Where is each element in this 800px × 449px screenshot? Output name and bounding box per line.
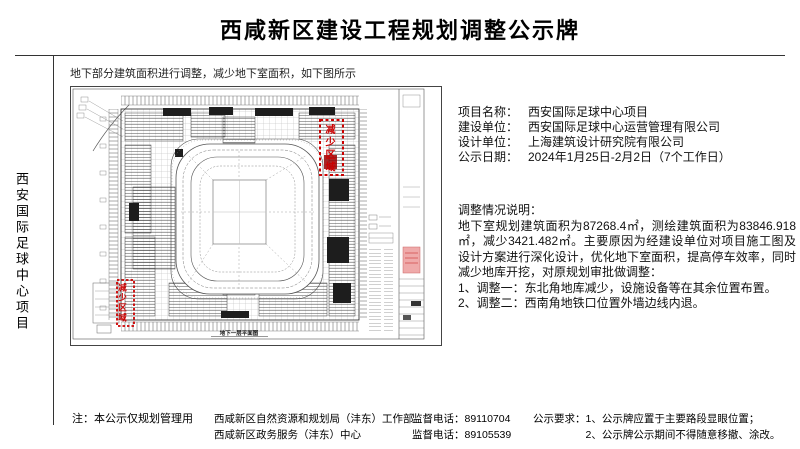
adjustment-heading: 调整情况说明： <box>458 203 796 219</box>
info-row-design-unit: 设计单位： 上海建筑设计研究院有限公司 <box>458 135 793 150</box>
info-value: 西安国际足球中心项目 <box>528 105 648 120</box>
reduce-area-label-sw: 减少区域 <box>118 283 127 323</box>
info-row-project-name: 项目名称： 西安国际足球中心项目 <box>458 105 793 120</box>
title-block-strip <box>399 95 424 335</box>
phone-number: 89110704 <box>465 413 511 425</box>
drawing-note-text: 地下部分建筑面积进行调整，减少地下室面积，如下图所示 <box>70 65 356 81</box>
requirements-label: 公示要求： <box>533 411 586 443</box>
title-divider-line <box>15 55 785 56</box>
supervision-phone-list: 监督电话：89110704 监督电话：89105539 <box>412 411 511 443</box>
notes-column <box>369 215 393 331</box>
project-info-panel: 项目名称： 西安国际足球中心项目 建设单位： 西安国际足球中心运营管理有限公司 … <box>458 105 793 165</box>
publicity-requirements: 公示要求： 1、公示牌应置于主要路段显眼位置； 2、公示牌公示期间不得随意移撤、… <box>533 411 780 443</box>
info-value: 西安国际足球中心运营管理有限公司 <box>528 120 720 135</box>
phone-row-1: 监督电话：89110704 <box>412 411 511 427</box>
info-row-publicity-date: 公示日期： 2024年1月25日-2月2日（7个工作日） <box>458 150 793 165</box>
info-value: 上海建筑设计研究院有限公司 <box>528 135 684 150</box>
approval-stamp <box>403 247 420 273</box>
info-row-construction-unit: 建设单位： 西安国际足球中心运营管理有限公司 <box>458 120 793 135</box>
info-value: 2024年1月25日-2月2日（7个工作日） <box>528 150 731 165</box>
requirement-item-2: 2、公示牌公示期间不得随意移撤、涂改。 <box>586 427 781 443</box>
adjustment-item-1: 1、调整一：东北角地库减少，设施设备等在其余位置布置。 <box>458 281 796 297</box>
info-label: 项目名称： <box>458 105 528 120</box>
reduce-area-label-ne: 减少区域 <box>323 124 333 174</box>
project-name-vertical-label: 西安国际足球中心项目 <box>12 172 31 332</box>
phone-label: 监督电话： <box>412 413 465 425</box>
phone-number: 89105539 <box>465 429 512 441</box>
info-label: 公示日期： <box>458 150 528 165</box>
axis-markers <box>100 117 106 310</box>
info-label: 建设单位： <box>458 120 528 135</box>
info-label: 设计单位： <box>458 135 528 150</box>
center-field <box>213 180 266 244</box>
requirement-item-1: 1、公示牌应置于主要路段显眼位置； <box>586 411 781 427</box>
adjustment-body: 地下室规划建筑面积为87268.4㎡，测绘建筑面积为83846.918㎡，减少3… <box>458 219 796 281</box>
notice-board: 西咸新区建设工程规划调整公示牌 西安国际足球中心项目 地下部分建筑面积进行调整，… <box>0 0 800 449</box>
plan-caption-text: 地下一层平面图 <box>220 329 259 337</box>
site-plan-drawing: 地下一层平面图 减少区域 减少区域 <box>70 86 442 346</box>
agency-name-1: 西咸新区自然资源和规划局（沣东）工作部 <box>214 411 414 427</box>
page-title: 西咸新区建设工程规划调整公示牌 <box>0 13 800 45</box>
agency-list: 西咸新区自然资源和规划局（沣东）工作部 西咸新区政务服务（沣东）中心 <box>214 411 414 443</box>
phone-label: 监督电话： <box>412 429 465 441</box>
requirements-items: 1、公示牌应置于主要路段显眼位置； 2、公示牌公示期间不得随意移撤、涂改。 <box>586 411 781 443</box>
left-column-divider-line <box>53 55 54 425</box>
adjustment-description-panel: 调整情况说明： 地下室规划建筑面积为87268.4㎡，测绘建筑面积为83846.… <box>458 203 796 312</box>
phone-row-2: 监督电话：89105539 <box>412 427 511 443</box>
agency-name-2: 西咸新区政务服务（沣东）中心 <box>214 427 414 443</box>
adjustment-item-2: 2、调整二：西南角地铁口位置外墙边线内退。 <box>458 296 796 312</box>
footer-note: 注：本公示仅规划管理用 <box>72 411 193 427</box>
